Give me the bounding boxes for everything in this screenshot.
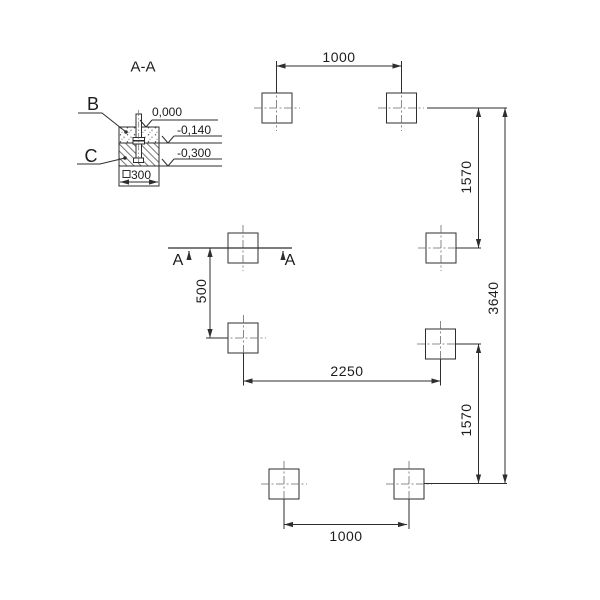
elevation-mid-value: -0,140 bbox=[177, 124, 211, 136]
dim-right-upper-value: 1570 bbox=[459, 160, 473, 193]
section-letter-right: A bbox=[285, 253, 296, 269]
elevation-mark-0300 bbox=[159, 159, 222, 166]
label-b: B bbox=[87, 95, 99, 113]
dimension-lines bbox=[206, 61, 507, 529]
section-letter-left: A bbox=[173, 253, 184, 269]
dim-top-spacing-value: 1000 bbox=[322, 50, 355, 64]
dim-middle-spacing-value: 2250 bbox=[330, 364, 363, 378]
elevation-top-value: 0,000 bbox=[152, 106, 182, 118]
drawing-linework bbox=[0, 0, 600, 600]
elevation-bottom-value: -0,300 bbox=[177, 147, 211, 159]
dim-right-lower-value: 1570 bbox=[459, 403, 473, 436]
dim-section-offset-value: 500 bbox=[194, 279, 208, 304]
section-title: A-A bbox=[130, 60, 155, 75]
elevation-mark-0140 bbox=[159, 136, 222, 143]
dim-bottom-spacing-value: 1000 bbox=[329, 529, 362, 543]
footing-centerlines bbox=[220, 85, 456, 507]
label-c: C bbox=[85, 147, 98, 165]
dim-overall-height-value: 3640 bbox=[486, 281, 500, 314]
plan-footings bbox=[228, 93, 456, 499]
drawing-canvas: A-A B C 0,000 -0,140 -0,300 300 A A 1000… bbox=[0, 0, 600, 600]
base-size-value: 300 bbox=[131, 169, 151, 181]
section-cut-line bbox=[168, 248, 292, 260]
